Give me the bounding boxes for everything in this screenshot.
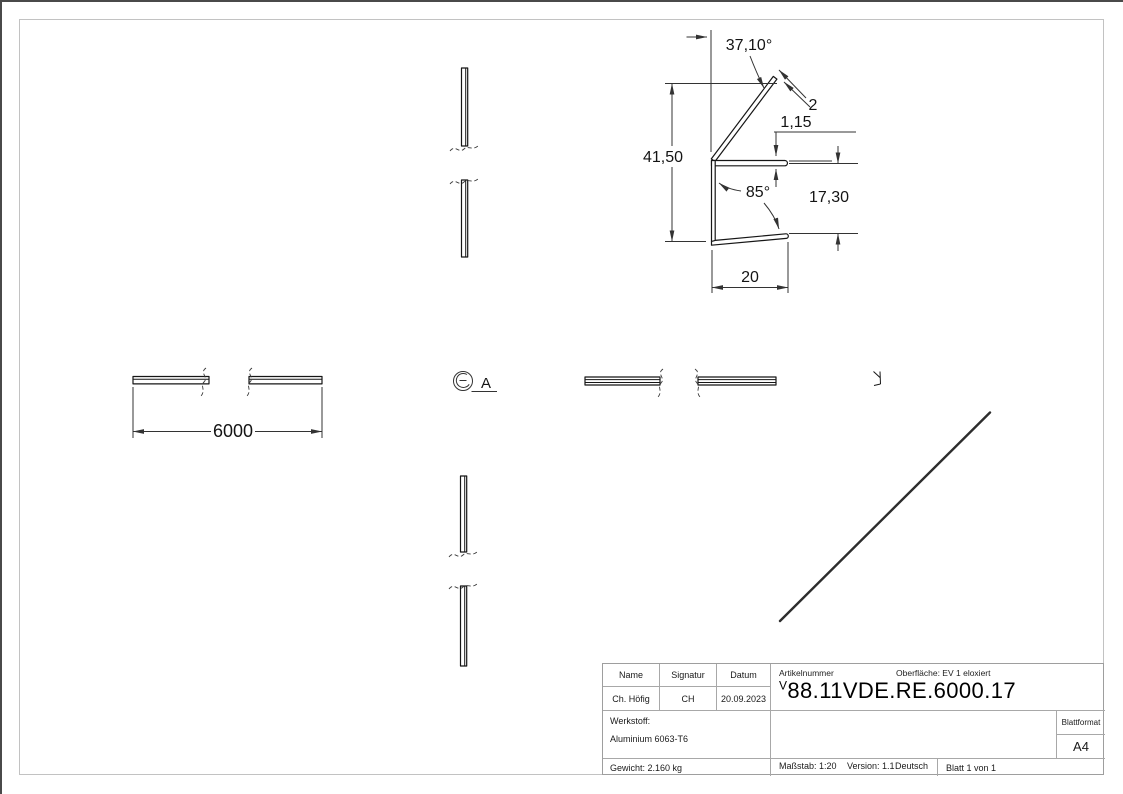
sprache: Deutsch — [895, 761, 928, 771]
profile-bottom-flange — [712, 234, 789, 245]
profile-diagonal-flange — [711, 76, 777, 161]
blattformat-label: Blattformat — [1057, 711, 1105, 735]
titleblock-value-name: Ch. Höfig — [603, 687, 660, 711]
view-label-letter: A — [481, 375, 491, 392]
length-view-right — [585, 369, 881, 397]
dim-length: 6000 — [213, 421, 253, 441]
dim-angle-top: 37,10° — [726, 37, 772, 54]
profile-end-view — [874, 372, 881, 386]
titleblock-empty-cell — [771, 711, 1057, 759]
titleblock-scale-cell: Maßstab: 1:20 Version: 1.1 Deutsch — [771, 759, 938, 776]
artikelnummer-label: Artikelnummer — [779, 668, 834, 678]
artikelnummer-value: V88.11VDE.RE.6000.17 — [779, 678, 1016, 704]
dim-channel-height: 17,30 — [809, 189, 849, 206]
view-arrow-icon — [456, 373, 469, 387]
blattformat-value: A4 — [1057, 735, 1105, 759]
detail-view-profile — [711, 76, 788, 245]
titleblock-header-name: Name — [603, 664, 660, 687]
profile-top-lip — [712, 161, 788, 166]
titleblock-value-signatur: CH — [660, 687, 717, 711]
length-view-left: 6000 — [133, 368, 322, 441]
titleblock-header-signatur: Signatur — [660, 664, 717, 687]
drawing-sheet: 37,10° 2 41,50 1,15 17,30 — [0, 0, 1123, 794]
titleblock-gewicht: Gewicht: 2.160 kg — [603, 759, 771, 776]
oberflaeche-label: Oberfläche: EV 1 eloxiert — [896, 668, 991, 678]
titleblock-header-datum: Datum — [717, 664, 771, 687]
dim-lip-offset: 1,15 — [780, 114, 811, 131]
massstab: Maßstab: 1:20 — [779, 761, 837, 771]
isometric-view — [780, 413, 990, 622]
titleblock-blatt: Blatt 1 von 1 — [938, 759, 1103, 776]
dim-width: 20 — [741, 269, 759, 286]
titleblock-werkstoff-cell: Werkstoff: Aluminium 6063-T6 — [603, 711, 771, 759]
titleblock-artikelnummer-cell: Artikelnummer Oberfläche: EV 1 eloxiert … — [771, 664, 1105, 711]
dim-thickness: 2 — [809, 97, 818, 114]
werkstoff-label: Werkstoff: — [610, 716, 650, 726]
titleblock-value-datum: 20.09.2023 — [717, 687, 771, 711]
title-block: Name Signatur Datum Ch. Höfig CH 20.09.2… — [602, 663, 1104, 775]
dim-angle-bottom: 85° — [746, 184, 770, 201]
side-view-bottom — [449, 476, 477, 666]
dim-height: 41,50 — [643, 149, 683, 166]
side-view-top — [450, 68, 478, 257]
detail-view-label: A — [454, 372, 498, 393]
profile-web — [712, 161, 716, 242]
version: Version: 1.1 — [847, 761, 895, 771]
werkstoff-value: Aluminium 6063-T6 — [610, 734, 688, 744]
